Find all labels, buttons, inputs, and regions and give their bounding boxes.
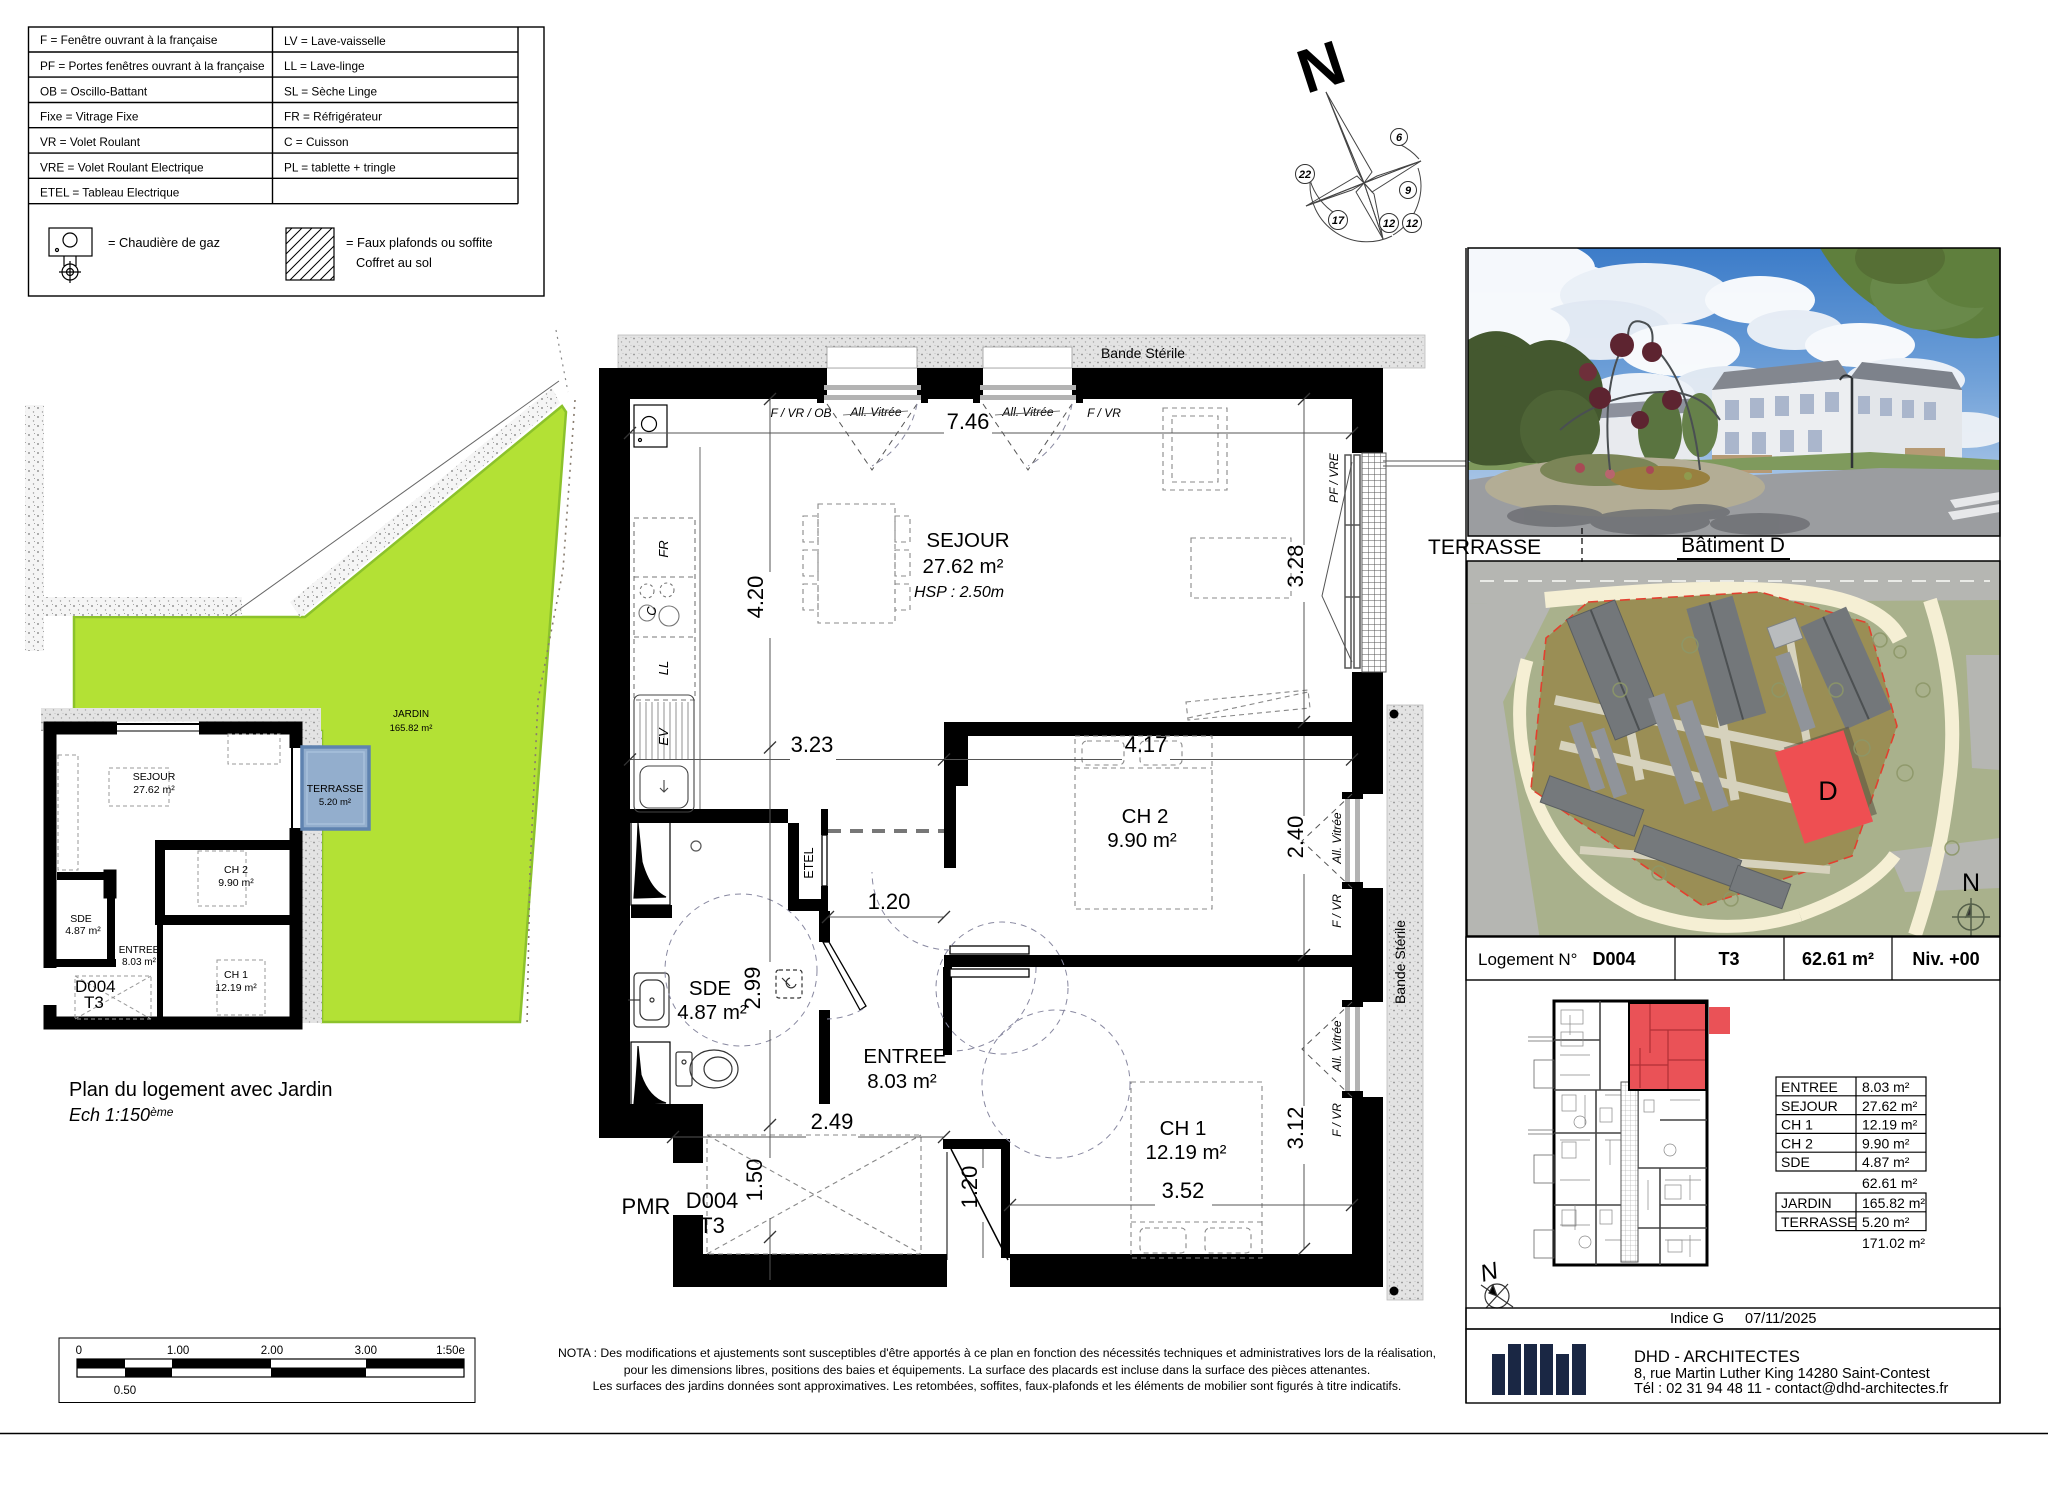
svg-text:VRE = Volet Roulant Electrique: VRE = Volet Roulant Electrique [40, 160, 204, 174]
svg-text:3.52: 3.52 [1162, 1178, 1205, 1203]
svg-text:7.46: 7.46 [947, 409, 990, 434]
svg-text:6: 6 [1396, 132, 1403, 144]
svg-text:Tél : 02 31 94 48 11 - contact: Tél : 02 31 94 48 11 - contact@dhd-archi… [1634, 1381, 1948, 1397]
svg-text:Niv. +00: Niv. +00 [1912, 949, 1979, 969]
svg-text:CH 1: CH 1 [1160, 1117, 1207, 1140]
svg-text:3.12: 3.12 [1283, 1107, 1308, 1150]
svg-text:LV = Lave-vaisselle: LV = Lave-vaisselle [284, 34, 386, 48]
svg-text:Logement N°: Logement N° [1478, 950, 1577, 969]
svg-text:ETEL: ETEL [802, 847, 816, 878]
svg-text:N: N [1962, 869, 1980, 897]
svg-text:SDE: SDE [70, 913, 92, 925]
svg-text:CH 1: CH 1 [224, 969, 248, 981]
svg-text:2.00: 2.00 [261, 1345, 283, 1357]
svg-text:1.50: 1.50 [742, 1159, 767, 1202]
svg-text:FR: FR [656, 540, 671, 557]
svg-text:TERRASSE: TERRASSE [1428, 536, 1541, 559]
svg-text:SL = Sèche Linge: SL = Sèche Linge [284, 85, 377, 99]
svg-text:TERRASSE: TERRASSE [307, 783, 364, 795]
svg-text:F / VR / OB: F / VR / OB [770, 406, 831, 420]
svg-text:1.00: 1.00 [167, 1345, 189, 1357]
svg-text:T3: T3 [699, 1213, 725, 1238]
svg-text:T3: T3 [84, 993, 104, 1012]
svg-text:4.17: 4.17 [1125, 732, 1168, 757]
svg-text:1.20: 1.20 [868, 889, 911, 914]
svg-text:Bâtiment D: Bâtiment D [1681, 534, 1785, 557]
svg-text:PF / VRE: PF / VRE [1327, 452, 1341, 503]
svg-text:165.82 m²: 165.82 m² [390, 723, 433, 734]
svg-text:Fixe = Vitrage Fixe: Fixe = Vitrage Fixe [40, 110, 139, 124]
svg-text:PL = tablette + tringle: PL = tablette + tringle [284, 160, 396, 174]
svg-text:CH 2: CH 2 [224, 864, 248, 876]
svg-text:CH 2: CH 2 [1781, 1135, 1813, 1151]
svg-text:22: 22 [1298, 169, 1311, 181]
svg-text:ETEL = Tableau Electrique: ETEL = Tableau Electrique [40, 186, 180, 200]
svg-text:C = Cuisson: C = Cuisson [284, 135, 349, 149]
svg-text:3.23: 3.23 [791, 732, 834, 757]
svg-text:Bande Stérile: Bande Stérile [1392, 920, 1408, 1004]
svg-text:8, rue Martin Luther King 1428: 8, rue Martin Luther King 14280 Saint-Co… [1634, 1366, 1930, 1382]
svg-text:Les surfaces des jardins donné: Les surfaces des jardins données sont ap… [593, 1379, 1402, 1393]
svg-text:NOTA : Des modifications et aj: NOTA : Des modifications et ajustements … [558, 1346, 1436, 1360]
svg-text:All. Vitrée: All. Vitrée [1330, 812, 1344, 864]
svg-text:PF = Portes fenêtres ouvrant à: PF = Portes fenêtres ouvrant à la frança… [40, 59, 265, 73]
svg-text:T3: T3 [1718, 949, 1739, 969]
svg-text:SDE: SDE [1781, 1154, 1810, 1170]
svg-text:171.02 m²: 171.02 m² [1862, 1235, 1925, 1251]
svg-text:17: 17 [1332, 215, 1345, 227]
svg-text:8.03 m²: 8.03 m² [867, 1070, 937, 1093]
svg-text:SEJOUR: SEJOUR [926, 529, 1009, 552]
svg-text:9: 9 [1405, 185, 1412, 197]
svg-text:2.40: 2.40 [1283, 816, 1308, 859]
svg-text:3.28: 3.28 [1283, 545, 1308, 588]
svg-text:pour les dimensions libres, po: pour les dimensions libres, positions de… [624, 1363, 1371, 1377]
svg-text:12.19 m²: 12.19 m² [1146, 1141, 1227, 1164]
svg-text:VR = Volet Roulant: VR = Volet Roulant [40, 135, 141, 149]
svg-text:LL: LL [656, 661, 671, 675]
svg-text:12: 12 [1406, 218, 1418, 230]
svg-text:CH 1: CH 1 [1781, 1117, 1813, 1133]
svg-text:1.20: 1.20 [957, 1166, 982, 1209]
svg-text:62.61 m²: 62.61 m² [1802, 949, 1874, 969]
svg-text:12: 12 [1383, 218, 1395, 230]
svg-text:EV: EV [656, 727, 671, 746]
svg-text:D: D [1818, 776, 1838, 806]
svg-text:JARDIN: JARDIN [393, 709, 429, 720]
svg-text:D004: D004 [1592, 949, 1635, 969]
svg-text:FR = Réfrigérateur: FR = Réfrigérateur [284, 110, 382, 124]
svg-text:1:50e: 1:50e [436, 1345, 465, 1357]
svg-text:JARDIN: JARDIN [1781, 1195, 1832, 1211]
svg-text:9.90 m²: 9.90 m² [218, 877, 254, 889]
svg-text:CH 2: CH 2 [1122, 805, 1169, 828]
svg-text:SEJOUR: SEJOUR [1781, 1098, 1838, 1114]
svg-text:ENTREE: ENTREE [119, 945, 160, 956]
svg-text:PMR: PMR [622, 1194, 671, 1219]
svg-text:= Faux plafonds ou soffite: = Faux plafonds ou soffite [346, 235, 493, 250]
svg-text:27.62 m²: 27.62 m² [133, 784, 175, 796]
svg-text:F = Fenêtre ouvrant à la franç: F = Fenêtre ouvrant à la française [40, 33, 218, 47]
svg-text:2.49: 2.49 [811, 1109, 854, 1134]
svg-text:TERRASSE: TERRASSE [1781, 1214, 1856, 1230]
svg-text:4.87 m²: 4.87 m² [65, 925, 101, 937]
svg-text:3.00: 3.00 [355, 1345, 377, 1357]
svg-text:HSP : 2.50m: HSP : 2.50m [914, 584, 1004, 601]
svg-text:Coffret au sol: Coffret au sol [356, 255, 432, 270]
svg-text:5.20 m²: 5.20 m² [1862, 1214, 1910, 1230]
svg-text:OB = Oscillo-Battant: OB = Oscillo-Battant [40, 85, 148, 99]
svg-text:F / VR: F / VR [1330, 1103, 1344, 1137]
svg-text:165.82 m²: 165.82 m² [1862, 1195, 1925, 1211]
svg-text:07/11/2025: 07/11/2025 [1745, 1311, 1817, 1327]
svg-text:D004: D004 [686, 1188, 739, 1213]
svg-text:C: C [644, 606, 659, 616]
svg-text:ENTREE: ENTREE [1781, 1079, 1838, 1095]
svg-text:62.61 m²: 62.61 m² [1862, 1175, 1918, 1191]
svg-text:27.62 m²: 27.62 m² [1862, 1098, 1918, 1114]
svg-text:4.87 m²: 4.87 m² [1862, 1154, 1910, 1170]
svg-text:8.03 m²: 8.03 m² [1862, 1079, 1910, 1095]
svg-text:4.87 m²: 4.87 m² [677, 1001, 747, 1024]
svg-text:Plan du logement avec Jardin: Plan du logement avec Jardin [69, 1079, 333, 1101]
svg-text:12.19 m²: 12.19 m² [1862, 1117, 1918, 1133]
svg-text:27.62 m²: 27.62 m² [923, 555, 1004, 578]
svg-text:Indice G: Indice G [1670, 1311, 1724, 1327]
svg-text:SDE: SDE [689, 977, 731, 1000]
svg-text:9.90 m²: 9.90 m² [1107, 829, 1177, 852]
svg-text:Bande Stérile: Bande Stérile [1101, 345, 1185, 361]
svg-text:5.20 m²: 5.20 m² [319, 797, 351, 808]
svg-text:0: 0 [76, 1345, 82, 1357]
svg-text:DHD - ARCHITECTES: DHD - ARCHITECTES [1634, 1348, 1800, 1366]
svg-text:12.19 m²: 12.19 m² [215, 982, 257, 994]
svg-text:9.90 m²: 9.90 m² [1862, 1135, 1910, 1151]
svg-text:LL = Lave-linge: LL = Lave-linge [284, 59, 365, 73]
svg-text:ENTREE: ENTREE [863, 1045, 946, 1068]
svg-text:All. Vitrée: All. Vitrée [1330, 1020, 1344, 1072]
svg-text:F / VR: F / VR [1087, 406, 1121, 420]
svg-text:SEJOUR: SEJOUR [133, 771, 176, 783]
svg-text:4.20: 4.20 [743, 576, 768, 619]
svg-text:0.50: 0.50 [114, 1385, 136, 1397]
svg-text:= Chaudière de gaz: = Chaudière de gaz [108, 235, 220, 250]
svg-text:F / VR: F / VR [1330, 894, 1344, 928]
svg-text:8.03 m²: 8.03 m² [122, 957, 157, 968]
